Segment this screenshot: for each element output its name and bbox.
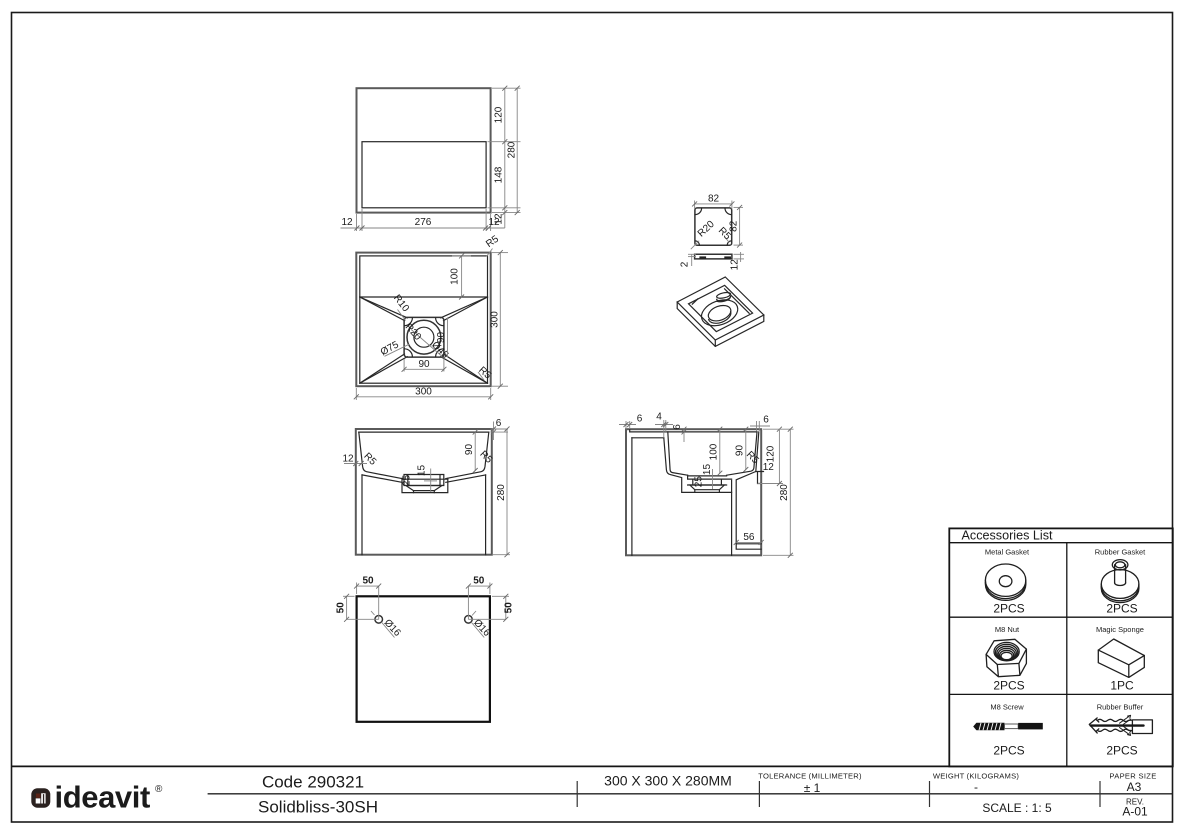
svg-text:± 1: ± 1 <box>804 781 821 795</box>
svg-text:®: ® <box>155 784 163 795</box>
svg-text:90: 90 <box>436 332 447 344</box>
svg-text:82: 82 <box>708 193 720 204</box>
svg-text:50: 50 <box>473 576 485 587</box>
svg-text:25: 25 <box>402 475 413 487</box>
svg-text:276: 276 <box>415 217 432 228</box>
svg-text:A3: A3 <box>1127 780 1142 794</box>
svg-text:82: 82 <box>729 220 740 232</box>
svg-text:TOLERANCE (MILLIMETER): TOLERANCE (MILLIMETER) <box>758 772 862 781</box>
svg-text:6: 6 <box>496 418 502 429</box>
svg-text:25: 25 <box>694 476 705 488</box>
svg-text:Solidbliss-30SH: Solidbliss-30SH <box>258 797 378 816</box>
svg-text:M8 Screw: M8 Screw <box>990 703 1024 712</box>
svg-text:Magic Sponge: Magic Sponge <box>1096 625 1144 634</box>
svg-text:Code 290321: Code 290321 <box>262 772 364 791</box>
svg-text:Metal Gasket: Metal Gasket <box>985 548 1030 557</box>
svg-text:148: 148 <box>494 166 505 183</box>
svg-text:Rubber Buffer: Rubber Buffer <box>1097 703 1144 712</box>
svg-text:Accessories List: Accessories List <box>962 528 1053 542</box>
svg-text:A-01: A-01 <box>1122 805 1148 819</box>
svg-text:300: 300 <box>415 386 432 397</box>
svg-text:280: 280 <box>779 484 790 501</box>
svg-text:15: 15 <box>702 464 713 476</box>
svg-text:12: 12 <box>763 462 775 473</box>
svg-text:12: 12 <box>729 259 740 271</box>
svg-text:300: 300 <box>489 311 500 328</box>
svg-text:2PCS: 2PCS <box>993 744 1024 758</box>
svg-text:1PC: 1PC <box>1110 679 1134 693</box>
svg-text:12: 12 <box>341 217 353 228</box>
svg-text:6: 6 <box>672 424 683 430</box>
svg-text:2PCS: 2PCS <box>1106 602 1137 616</box>
svg-text:15: 15 <box>417 465 428 477</box>
svg-text:6: 6 <box>637 414 643 425</box>
svg-text:2PCS: 2PCS <box>993 679 1024 693</box>
svg-text:2PCS: 2PCS <box>1106 744 1137 758</box>
svg-text:100: 100 <box>708 443 719 460</box>
svg-text:12: 12 <box>342 454 354 465</box>
svg-text:50: 50 <box>504 602 515 614</box>
svg-text:ideavit: ideavit <box>55 780 150 815</box>
svg-text:56: 56 <box>743 532 755 543</box>
svg-text:50: 50 <box>335 602 346 614</box>
svg-text:M8 Nut: M8 Nut <box>995 625 1020 634</box>
svg-text:90: 90 <box>734 445 745 457</box>
svg-text:50: 50 <box>362 576 374 587</box>
svg-text:120: 120 <box>494 106 505 123</box>
svg-text:300 X 300 X 280MM: 300 X 300 X 280MM <box>604 773 732 789</box>
svg-text:Rubber Gasket: Rubber Gasket <box>1095 548 1146 557</box>
svg-text:120: 120 <box>766 445 777 462</box>
svg-text:4: 4 <box>656 412 662 423</box>
svg-text:280: 280 <box>507 141 518 158</box>
svg-text:90: 90 <box>418 359 430 370</box>
svg-text:90: 90 <box>464 444 475 456</box>
svg-text:-: - <box>974 780 978 794</box>
svg-text:6: 6 <box>763 415 769 426</box>
svg-text:12: 12 <box>488 217 500 228</box>
svg-text:100: 100 <box>450 268 461 285</box>
svg-text:2PCS: 2PCS <box>993 602 1024 616</box>
svg-text:280: 280 <box>496 484 507 501</box>
svg-text:2: 2 <box>680 261 691 267</box>
svg-text:SCALE : 1: 5: SCALE : 1: 5 <box>982 801 1052 815</box>
